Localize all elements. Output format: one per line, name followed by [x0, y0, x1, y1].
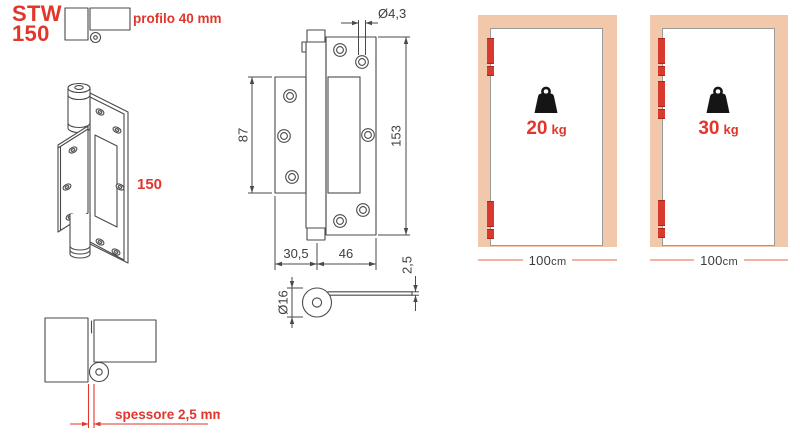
leaf-width-text: 46: [339, 246, 353, 261]
total-height-text: 153: [389, 125, 404, 147]
weight-icon: [531, 86, 561, 113]
offset-width-text: 30,5: [283, 246, 308, 261]
door-two-hinges: 20 kg: [478, 15, 617, 247]
hinge-3d-drawing: [45, 70, 175, 270]
weight-icon: [703, 86, 733, 113]
capacity-value: 30: [698, 118, 719, 140]
dim-knuckle-diameter: Ø16: [276, 277, 304, 328]
dim-leaf-thickness: 2,5: [400, 256, 420, 311]
hinge-catalog-diagram: STW 150 profilo 40 mm: [0, 0, 800, 440]
width-value: 100: [529, 253, 552, 268]
hole-diameter-text: Ø4,3: [378, 6, 406, 21]
width-unit: cm: [551, 256, 566, 268]
capacity-label: 20 kg: [490, 118, 603, 140]
knuckle-diameter-text: Ø16: [276, 290, 291, 315]
measure-line: [478, 259, 523, 261]
hinge-marker: [658, 200, 665, 238]
section-drawing: spessore 2,5 mm: [40, 300, 220, 436]
measure-line: [650, 259, 694, 261]
door-width-label: 100cm: [478, 252, 617, 268]
hinge-marker: [658, 81, 665, 119]
thickness-dimension: spessore 2,5 mm: [70, 384, 220, 428]
dim-leaf-height: 87: [236, 77, 273, 193]
capacity-value: 20: [526, 118, 547, 140]
thickness-label: spessore 2,5 mm: [115, 407, 220, 422]
width-unit: cm: [723, 256, 738, 268]
length-dimension-label: 150: [137, 176, 162, 193]
capacity-unit: kg: [551, 122, 566, 137]
product-size: 150: [12, 24, 62, 44]
measure-line: [572, 259, 617, 261]
leaf-height-text: 87: [236, 128, 251, 142]
profile-label: profilo 40 mm: [133, 11, 222, 26]
measure-line: [744, 259, 788, 261]
hinge-marker: [487, 201, 494, 239]
capacity-unit: kg: [723, 122, 738, 137]
width-value: 100: [700, 253, 723, 268]
hinge-marker: [487, 38, 494, 76]
hinge-marker: [658, 38, 665, 76]
door-width-label: 100cm: [650, 252, 788, 268]
product-code-block: STW 150: [12, 4, 62, 44]
dim-total-height: 153: [378, 37, 410, 235]
side-view: [303, 288, 413, 317]
capacity-label: 30 kg: [662, 118, 775, 140]
technical-drawing: Ø4,3 153 87: [225, 0, 440, 350]
profile-icon: [60, 4, 138, 52]
door-three-hinges: 30 kg: [650, 15, 788, 247]
leaf-thickness-text: 2,5: [400, 256, 415, 274]
